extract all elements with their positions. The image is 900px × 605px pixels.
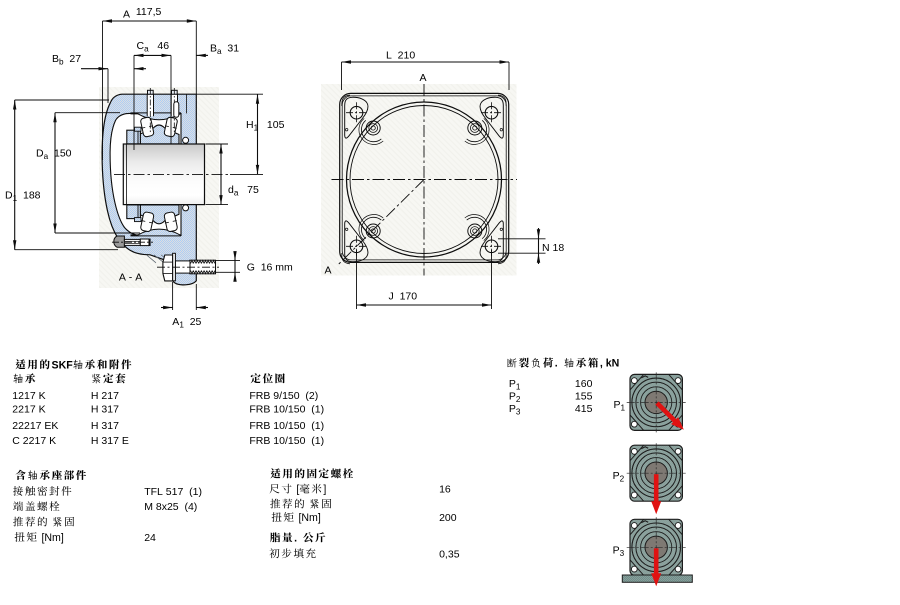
svg-text:H 217: H 217	[91, 390, 119, 402]
svg-text:FRB 10/150 (1): FRB 10/150 (1)	[249, 420, 324, 432]
svg-text:Bb 27: Bb 27	[52, 53, 81, 67]
svg-text:Ca 46: Ca 46	[137, 40, 170, 54]
svg-text:]: ]	[323, 484, 326, 496]
svg-text:FRB 10/150 (1): FRB 10/150 (1)	[249, 435, 324, 447]
svg-text:L 210: L 210	[386, 50, 415, 62]
svg-text:D1 188: D1 188	[5, 190, 41, 204]
svg-text:H 317: H 317	[91, 420, 119, 432]
svg-text:FRB 10/150 (1): FRB 10/150 (1)	[249, 404, 324, 416]
svg-text:160: 160	[575, 378, 593, 390]
svg-text:.: .	[555, 358, 564, 370]
svg-text:A1 25: A1 25	[172, 316, 201, 330]
svg-text:A - A: A - A	[119, 272, 142, 284]
svg-text:, kN: , kN	[600, 358, 619, 370]
svg-text:M 8x25 (4): M 8x25 (4)	[144, 501, 197, 513]
svg-text:Ba 31: Ba 31	[210, 43, 239, 57]
svg-text:[: [	[293, 484, 299, 496]
svg-text:415: 415	[575, 403, 593, 415]
svg-text:[Nm]: [Nm]	[296, 512, 321, 524]
svg-text:Da 150: Da 150	[36, 148, 72, 162]
svg-text:A: A	[420, 72, 427, 84]
svg-text:16: 16	[439, 484, 451, 496]
svg-text:1217 K: 1217 K	[12, 390, 45, 402]
svg-text:H1 105: H1 105	[246, 119, 285, 133]
svg-text:SKF: SKF	[52, 359, 74, 371]
svg-text:G 16 mm: G 16 mm	[247, 262, 293, 274]
svg-text:C 2217 K: C 2217 K	[12, 435, 56, 447]
svg-text:155: 155	[575, 390, 593, 402]
svg-text:.: .	[294, 532, 303, 544]
svg-text:22217 EK: 22217 EK	[12, 420, 58, 432]
svg-text:J 170: J 170	[389, 291, 418, 303]
svg-text:A: A	[325, 265, 332, 277]
svg-text:0,35: 0,35	[439, 548, 460, 560]
svg-text:da 75: da 75	[228, 184, 259, 198]
svg-text:200: 200	[439, 512, 457, 524]
svg-text:N 18: N 18	[542, 242, 564, 254]
svg-text:TFL 517 (1): TFL 517 (1)	[144, 486, 202, 498]
svg-text:[Nm]: [Nm]	[39, 532, 64, 544]
svg-text:24: 24	[144, 532, 156, 544]
svg-text:FRB 9/150 (2): FRB 9/150 (2)	[249, 390, 318, 402]
svg-text:2217 K: 2217 K	[12, 404, 45, 416]
svg-text:H 317: H 317	[91, 404, 119, 416]
svg-text:H 317 E: H 317 E	[91, 435, 129, 447]
